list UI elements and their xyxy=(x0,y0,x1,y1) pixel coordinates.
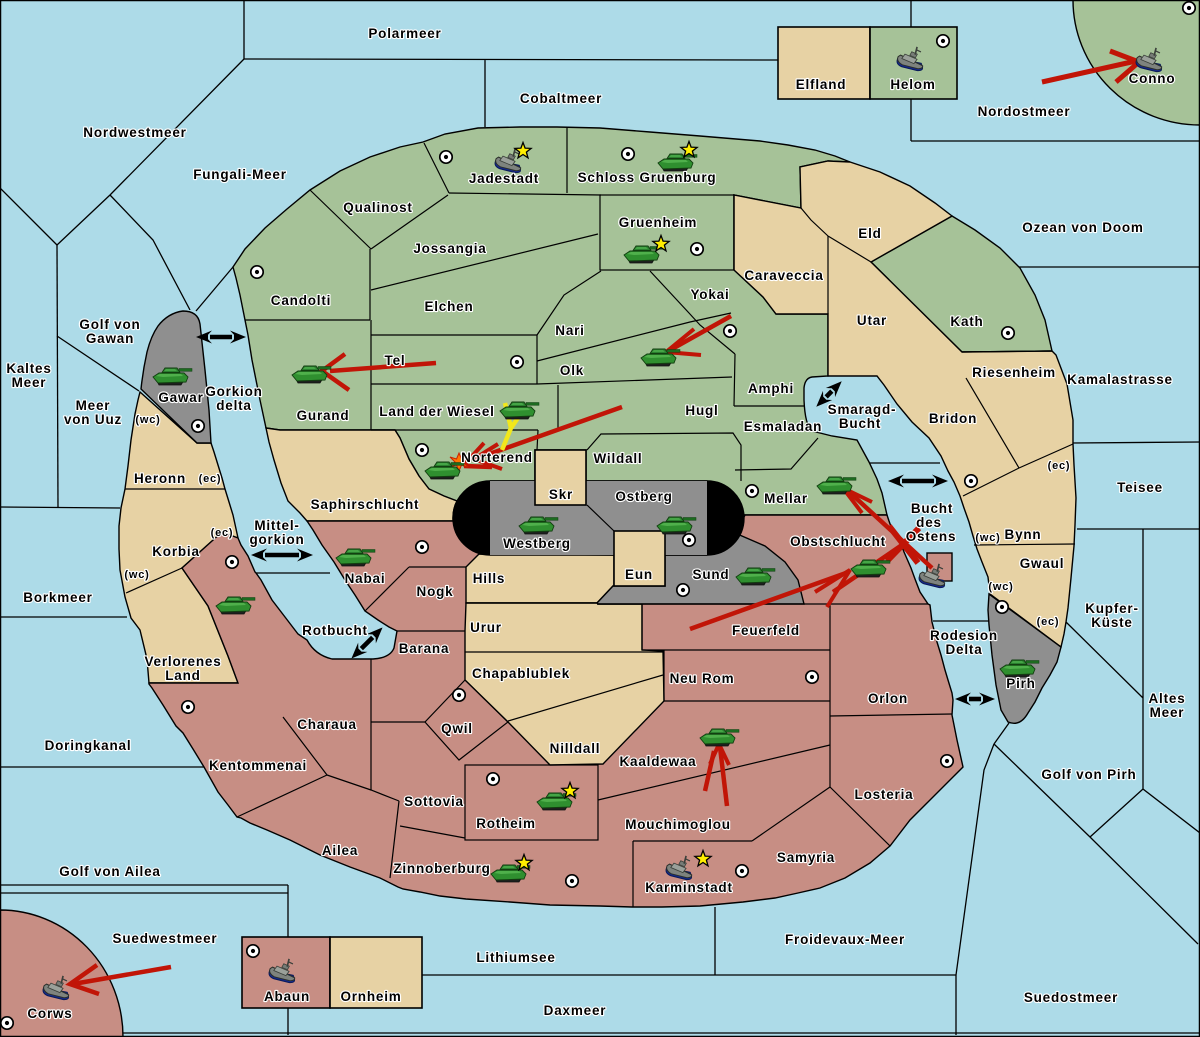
svg-text:Nilldall: Nilldall xyxy=(550,741,601,756)
svg-text:Eun: Eun xyxy=(625,567,653,582)
svg-text:Amphi: Amphi xyxy=(748,381,794,396)
svg-text:Verlorenes: Verlorenes xyxy=(144,654,221,669)
svg-text:Obstschlucht: Obstschlucht xyxy=(790,534,886,549)
svg-text:Land der Wiesel: Land der Wiesel xyxy=(379,404,494,419)
svg-text:(ec): (ec) xyxy=(211,527,234,539)
svg-text:Schloss Gruenburg: Schloss Gruenburg xyxy=(578,170,717,185)
svg-text:Golf von Pirh: Golf von Pirh xyxy=(1041,767,1136,782)
svg-text:Sund: Sund xyxy=(693,567,730,582)
svg-text:Samyria: Samyria xyxy=(777,850,835,865)
svg-text:Bucht: Bucht xyxy=(911,501,953,516)
svg-text:Gwaul: Gwaul xyxy=(1020,556,1065,571)
svg-text:Kaltes: Kaltes xyxy=(6,361,51,376)
svg-text:Rodesion: Rodesion xyxy=(930,628,998,643)
svg-text:Cobaltmeer: Cobaltmeer xyxy=(520,91,602,106)
svg-text:Ornheim: Ornheim xyxy=(340,989,401,1004)
svg-text:Froidevaux-Meer: Froidevaux-Meer xyxy=(785,932,905,947)
svg-text:Charaua: Charaua xyxy=(297,717,357,732)
svg-text:Nordwestmeer: Nordwestmeer xyxy=(83,125,186,140)
svg-text:Doringkanal: Doringkanal xyxy=(45,738,132,753)
svg-text:Orlon: Orlon xyxy=(868,691,908,706)
svg-text:Ailea: Ailea xyxy=(322,843,358,858)
svg-text:Rotbucht: Rotbucht xyxy=(302,623,368,638)
svg-text:Pirh: Pirh xyxy=(1006,676,1035,691)
svg-text:Ostens: Ostens xyxy=(906,529,957,544)
svg-text:Corws: Corws xyxy=(27,1006,72,1021)
svg-text:Elfland: Elfland xyxy=(796,77,847,92)
svg-text:(ec): (ec) xyxy=(1037,616,1060,628)
svg-text:delta: delta xyxy=(216,398,252,413)
svg-text:(ec): (ec) xyxy=(1048,460,1071,472)
svg-text:Skr: Skr xyxy=(549,487,573,502)
svg-text:Qualinost: Qualinost xyxy=(343,200,412,215)
svg-text:Gorkion: Gorkion xyxy=(205,384,262,399)
svg-text:Gawar: Gawar xyxy=(158,390,203,405)
svg-text:von Uuz: von Uuz xyxy=(64,412,122,427)
svg-text:Karminstadt: Karminstadt xyxy=(645,880,733,895)
svg-text:(wc): (wc) xyxy=(988,581,1013,593)
svg-text:Borkmeer: Borkmeer xyxy=(23,590,92,605)
svg-text:Daxmeer: Daxmeer xyxy=(544,1003,607,1018)
svg-text:Kath: Kath xyxy=(950,314,983,329)
svg-text:Saphirschlucht: Saphirschlucht xyxy=(311,497,420,512)
svg-text:Bynn: Bynn xyxy=(1005,527,1042,542)
svg-text:Heronn: Heronn xyxy=(134,471,186,486)
svg-text:Hugl: Hugl xyxy=(685,403,718,418)
svg-text:(wc): (wc) xyxy=(124,569,149,581)
svg-text:Qwil: Qwil xyxy=(441,721,473,736)
svg-text:Utar: Utar xyxy=(857,313,887,328)
svg-text:Gurand: Gurand xyxy=(297,408,350,423)
svg-text:Zinnoberburg: Zinnoberburg xyxy=(393,861,490,876)
svg-text:(wc): (wc) xyxy=(975,532,1000,544)
svg-text:Feuerfeld: Feuerfeld xyxy=(732,623,800,638)
svg-text:gorkion: gorkion xyxy=(249,532,304,547)
svg-text:Meer: Meer xyxy=(76,398,111,413)
svg-text:Jossangia: Jossangia xyxy=(413,241,486,256)
svg-text:Gawan: Gawan xyxy=(86,331,134,346)
svg-text:Mellar: Mellar xyxy=(764,491,808,506)
svg-text:Hills: Hills xyxy=(473,571,506,586)
svg-text:Golf von: Golf von xyxy=(79,317,140,332)
svg-text:Teisee: Teisee xyxy=(1117,480,1163,495)
svg-text:Lithiumsee: Lithiumsee xyxy=(476,950,555,965)
svg-text:Nordostmeer: Nordostmeer xyxy=(978,104,1071,119)
svg-text:des: des xyxy=(916,515,942,530)
svg-text:Eld: Eld xyxy=(858,226,881,241)
svg-text:Küste: Küste xyxy=(1091,615,1133,630)
svg-text:Nogk: Nogk xyxy=(417,584,454,599)
svg-text:Mouchimoglou: Mouchimoglou xyxy=(625,817,731,832)
svg-text:Tel: Tel xyxy=(385,353,406,368)
svg-text:Mittel-: Mittel- xyxy=(254,518,299,533)
svg-text:Losteria: Losteria xyxy=(855,787,914,802)
svg-text:Urur: Urur xyxy=(470,620,502,635)
svg-text:Suedostmeer: Suedostmeer xyxy=(1024,990,1118,1005)
svg-text:Yokai: Yokai xyxy=(690,287,729,302)
svg-text:Delta: Delta xyxy=(945,642,982,657)
svg-text:Smaragd-: Smaragd- xyxy=(828,402,897,417)
svg-text:Gruenheim: Gruenheim xyxy=(619,215,697,230)
svg-text:Ozean von Doom: Ozean von Doom xyxy=(1022,220,1143,235)
svg-text:Caraveccia: Caraveccia xyxy=(744,268,823,283)
svg-text:Meer: Meer xyxy=(1150,705,1185,720)
svg-text:Altes: Altes xyxy=(1148,691,1185,706)
svg-text:Kamalastrasse: Kamalastrasse xyxy=(1067,372,1173,387)
svg-text:Barana: Barana xyxy=(399,641,450,656)
svg-text:Kentommenai: Kentommenai xyxy=(209,758,307,773)
svg-text:Neu Rom: Neu Rom xyxy=(670,671,735,686)
svg-text:Golf von Ailea: Golf von Ailea xyxy=(59,864,160,879)
svg-text:Chapablublek: Chapablublek xyxy=(472,666,570,681)
svg-text:Elchen: Elchen xyxy=(424,299,473,314)
svg-text:Bucht: Bucht xyxy=(839,416,881,431)
svg-text:Nabai: Nabai xyxy=(345,571,386,586)
svg-text:Helom: Helom xyxy=(890,77,935,92)
svg-text:Esmaladan: Esmaladan xyxy=(744,419,822,434)
svg-text:Norterend: Norterend xyxy=(461,450,533,465)
svg-text:Bridon: Bridon xyxy=(929,411,977,426)
svg-text:Korbia: Korbia xyxy=(152,544,200,559)
svg-text:Nari: Nari xyxy=(555,323,584,338)
svg-text:Fungali-Meer: Fungali-Meer xyxy=(193,167,287,182)
svg-text:Sottovia: Sottovia xyxy=(404,794,464,809)
svg-text:Meer: Meer xyxy=(12,375,47,390)
svg-text:Candolti: Candolti xyxy=(271,293,331,308)
svg-text:Kupfer-: Kupfer- xyxy=(1085,601,1139,616)
svg-text:Jadestadt: Jadestadt xyxy=(469,171,539,186)
svg-text:Polarmeer: Polarmeer xyxy=(368,26,441,41)
svg-text:Olk: Olk xyxy=(560,363,584,378)
svg-text:Ostberg: Ostberg xyxy=(615,489,672,504)
svg-text:Riesenheim: Riesenheim xyxy=(972,365,1056,380)
svg-text:(ec): (ec) xyxy=(199,473,222,485)
svg-text:Wildall: Wildall xyxy=(594,451,643,466)
svg-text:Rotheim: Rotheim xyxy=(476,816,536,831)
svg-text:Kaaldewaa: Kaaldewaa xyxy=(620,754,697,769)
svg-text:Suedwestmeer: Suedwestmeer xyxy=(113,931,218,946)
svg-text:Westberg: Westberg xyxy=(503,536,571,551)
svg-text:Abaun: Abaun xyxy=(264,989,310,1004)
svg-text:Land: Land xyxy=(165,668,200,683)
svg-text:(wc): (wc) xyxy=(135,414,160,426)
svg-text:Conno: Conno xyxy=(1129,71,1176,86)
